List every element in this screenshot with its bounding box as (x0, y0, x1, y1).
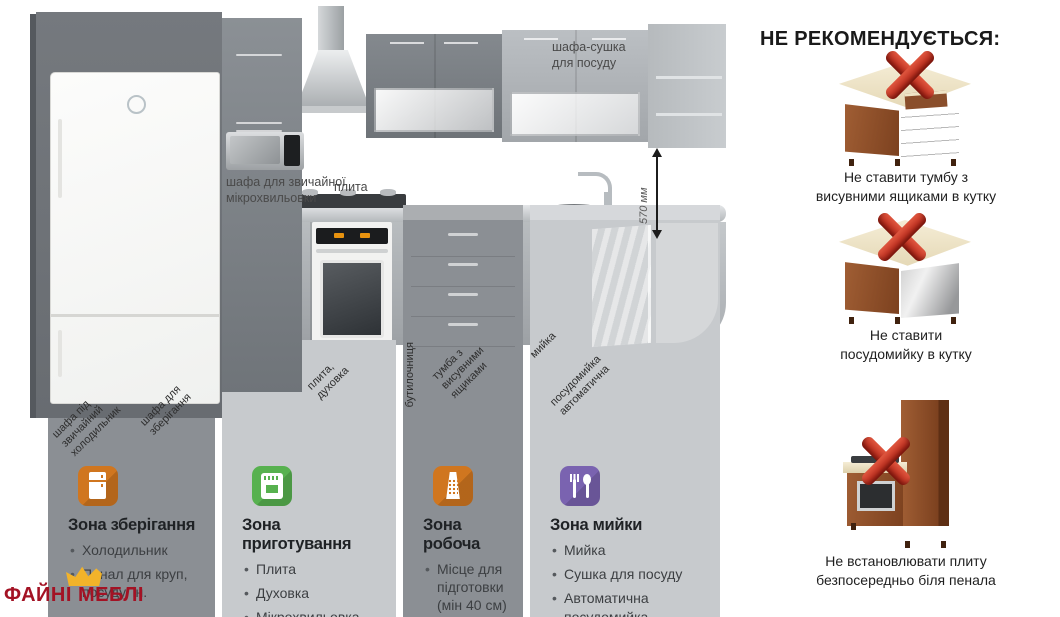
zone-items: Плита Духовка Мікрохвильовка (242, 560, 388, 617)
oven-icon (252, 466, 292, 506)
measure-line (656, 150, 658, 236)
microwave-oven (226, 132, 304, 170)
zone-items: Місце для підготовки (мін 40 см) (423, 560, 515, 615)
forbidden-x-icon (879, 44, 941, 106)
drawer-cabinet-hint (411, 227, 515, 343)
label-dish-dryer-cabinet: шафа-сушка для посуду (552, 40, 626, 71)
microwave-door (230, 136, 280, 164)
leg (895, 317, 900, 324)
zone-item: Автоматична посудомийка (550, 589, 712, 617)
zone-title: Зона приготування (242, 516, 388, 554)
zone-item: Плита (242, 560, 388, 578)
label-microwave-cabinet: шафа для звичайної мікрохвильовки (226, 175, 346, 206)
corner-drawer-cabinet-image (831, 62, 981, 162)
not-recommended-panel: НЕ РЕКОМЕНДУЄТЬСЯ: Не ставити тумбу з ви… (760, 28, 1052, 51)
kitchen-zones-infographic: 570 мм шафа-сушка для посуду шафа для зв… (0, 0, 1060, 617)
zone-card-washing: Зона мийки Мийка Сушка для посуду Автома… (530, 466, 720, 617)
cabinet-drawer-face (901, 104, 959, 160)
freezer-split-line (51, 314, 219, 317)
oven-window (320, 260, 384, 338)
leg (951, 159, 956, 166)
zone-title: Зона робоча (423, 516, 515, 554)
leg (849, 317, 854, 324)
stove-near-pantry-image (841, 400, 971, 546)
not-recommended-caption: Не ставити посудомийку в кутку (760, 326, 1052, 364)
label-bottle-rack: бутилочниця (404, 342, 416, 407)
brand-logo: ФАЙНІ МЕБЛІ (4, 584, 144, 607)
zone-item: Духовка (242, 584, 388, 602)
cutlery-icon (560, 466, 600, 506)
zone-item: Мийка (550, 541, 712, 559)
microwave-control-panel (284, 135, 300, 166)
zone-item: Місце для підготовки (мін 40 см) (423, 560, 515, 615)
zone-items: Мийка Сушка для посуду Автоматична посуд… (550, 541, 712, 617)
cabinet-left-face (845, 102, 899, 156)
forbidden-x-icon (853, 428, 919, 494)
leg (851, 523, 856, 530)
zone-item: Сушка для посуду (550, 565, 712, 583)
zone-card-work: Зона робоча Місце для підготовки (мін 40… (403, 466, 523, 615)
not-recommended-item: Не ставити посудомийку в кутку (760, 220, 1052, 364)
frosted-glass-doors (374, 88, 494, 132)
leg (951, 317, 956, 324)
oven-control-panel (316, 228, 388, 244)
leg (849, 159, 854, 166)
zone-item: Холодильник (68, 541, 207, 559)
cabinet-handle (444, 42, 478, 44)
built-in-oven (312, 222, 392, 342)
oven-handle (316, 249, 388, 253)
fridge-icon (78, 466, 118, 506)
label-hob: плита (334, 180, 368, 196)
cabinet-handle (236, 54, 282, 56)
not-recommended-caption: Не ставити тумбу з висувними ящиками в к… (760, 168, 1052, 206)
not-recommended-caption: Не встановлювати плиту безпосередньо біл… (760, 552, 1052, 590)
shelf (656, 113, 722, 116)
cabinet-left-face (845, 260, 899, 314)
zone-title: Зона зберігання (68, 516, 207, 535)
shelf (656, 76, 722, 79)
zone-title: Зона мийки (550, 516, 712, 535)
forbidden-x-icon (871, 206, 933, 268)
fridge-handle (58, 119, 62, 198)
zone-item: Мікрохвильовка (242, 608, 388, 617)
frosted-glass-doors (510, 92, 640, 136)
cabinet-handle (390, 42, 424, 44)
refrigerator (50, 72, 220, 404)
measure-value-label: 570 мм (638, 160, 650, 224)
fridge-brand-logo (127, 95, 146, 114)
pot (380, 189, 396, 196)
dishwasher-hint (592, 225, 651, 347)
leg (941, 541, 946, 548)
leg (905, 541, 910, 548)
grater-icon (433, 466, 473, 506)
not-recommended-item: Не ставити тумбу з висувними ящиками в к… (760, 62, 1052, 206)
wall-cabinet-dark (366, 34, 502, 138)
zone-column-work: Зона робоча Місце для підготовки (мін 40… (403, 205, 523, 617)
hood-chimney (318, 6, 344, 52)
leg (895, 159, 900, 166)
oven-display (334, 233, 344, 238)
open-shelf-unit (648, 24, 726, 148)
cabinet-handle (236, 122, 282, 124)
hood-edge (292, 106, 374, 113)
measure-arrow-down (652, 230, 662, 239)
zone-card-cooking: Зона приготування Плита Духовка Мікрохви… (222, 466, 396, 617)
freezer-handle (58, 330, 62, 376)
extractor-hood (296, 50, 370, 108)
dishwasher-door-face (901, 262, 959, 318)
corner-dishwasher-image (831, 220, 981, 320)
not-recommended-item: Не встановлювати плиту безпосередньо біл… (760, 400, 1052, 590)
curved-cabinet-hint (656, 223, 718, 343)
oven-display (360, 233, 370, 238)
